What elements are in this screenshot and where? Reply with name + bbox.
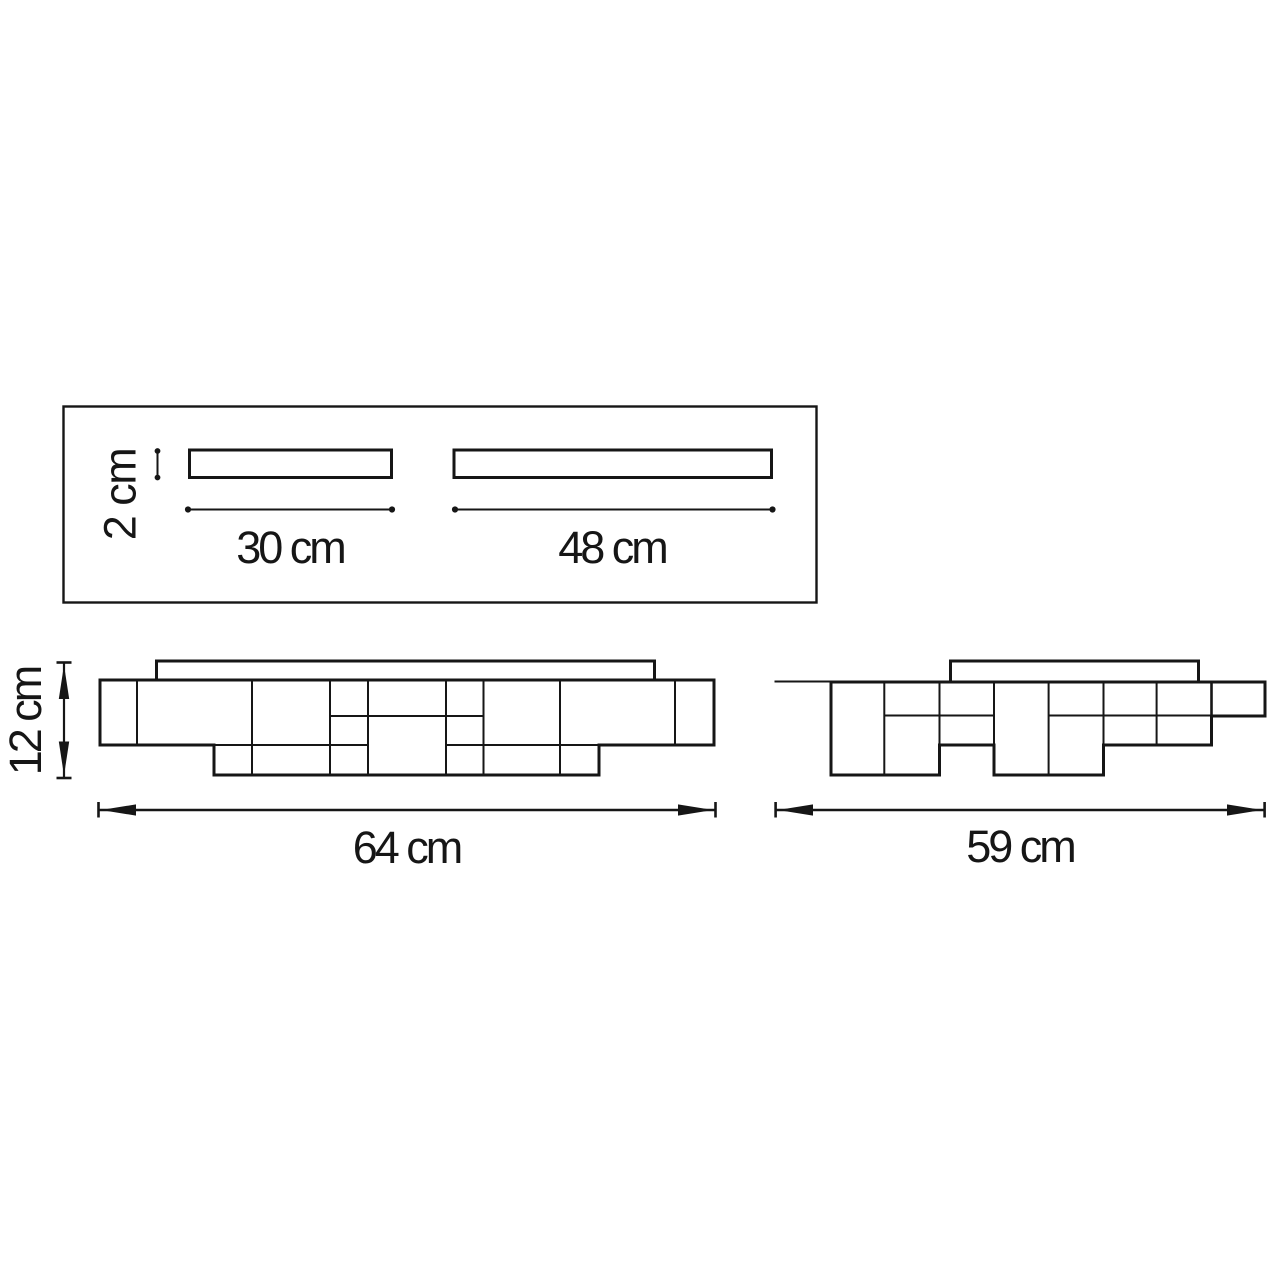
svg-text:64 cm: 64 cm [353,822,461,873]
svg-text:59 cm: 59 cm [966,821,1074,872]
svg-text:48 cm: 48 cm [558,522,666,573]
svg-text:2 cm: 2 cm [95,449,146,541]
svg-text:30 cm: 30 cm [236,522,344,573]
svg-text:12 cm: 12 cm [0,667,51,775]
